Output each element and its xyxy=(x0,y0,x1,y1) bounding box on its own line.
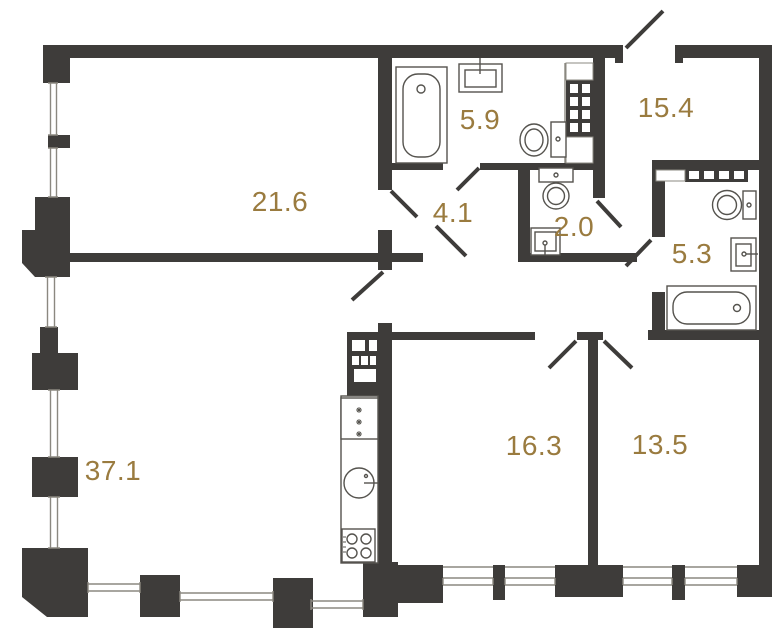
sink-icon xyxy=(731,238,758,271)
room-label-kitchen-living: 37.1 xyxy=(85,455,142,486)
entrance-door-icon xyxy=(626,11,663,48)
window-icon xyxy=(505,567,555,585)
floor-plan: 21.6 5.9 15.4 4.1 2.0 5.3 37.1 16.3 13.5 xyxy=(0,0,784,640)
window-icon xyxy=(311,599,363,610)
window-icon xyxy=(48,83,58,135)
door-icon xyxy=(352,272,383,300)
fixtures xyxy=(341,58,758,563)
door-icon xyxy=(436,226,466,256)
toilet-icon xyxy=(520,122,566,157)
window-icon xyxy=(623,567,672,585)
stove-icon xyxy=(342,529,375,562)
sink-icon xyxy=(459,58,502,92)
window-icon xyxy=(685,567,737,585)
floor-plan-canvas: 21.6 5.9 15.4 4.1 2.0 5.3 37.1 16.3 13.5 xyxy=(0,0,784,640)
window-icon xyxy=(180,591,273,602)
doors xyxy=(352,11,663,368)
door-icon xyxy=(391,191,417,217)
toilet-icon xyxy=(539,168,573,209)
toilet-icon xyxy=(713,191,757,220)
window-icon xyxy=(48,390,60,457)
room-label-bedroom-2: 13.5 xyxy=(632,429,689,460)
window-icon xyxy=(443,567,493,585)
door-icon xyxy=(597,201,621,227)
bathtub-icon xyxy=(667,286,756,330)
refrigerator-icon xyxy=(341,398,378,439)
door-icon xyxy=(549,341,576,368)
door-icon xyxy=(604,341,632,368)
bathtub-icon xyxy=(396,67,447,163)
window-icon xyxy=(88,582,140,593)
room-label-living-room: 21.6 xyxy=(252,186,309,217)
room-label-wc: 2.0 xyxy=(554,211,594,242)
window-icon xyxy=(45,277,57,327)
room-label-bathroom-2: 5.3 xyxy=(672,238,712,269)
window-icon xyxy=(48,148,58,197)
room-label-bedroom: 16.3 xyxy=(506,430,563,461)
room-label-hallway: 4.1 xyxy=(433,197,473,228)
window-icon xyxy=(48,497,60,548)
door-icon xyxy=(457,168,479,190)
room-label-entrance-hall: 15.4 xyxy=(638,92,695,123)
room-label-bathroom: 5.9 xyxy=(460,104,500,135)
